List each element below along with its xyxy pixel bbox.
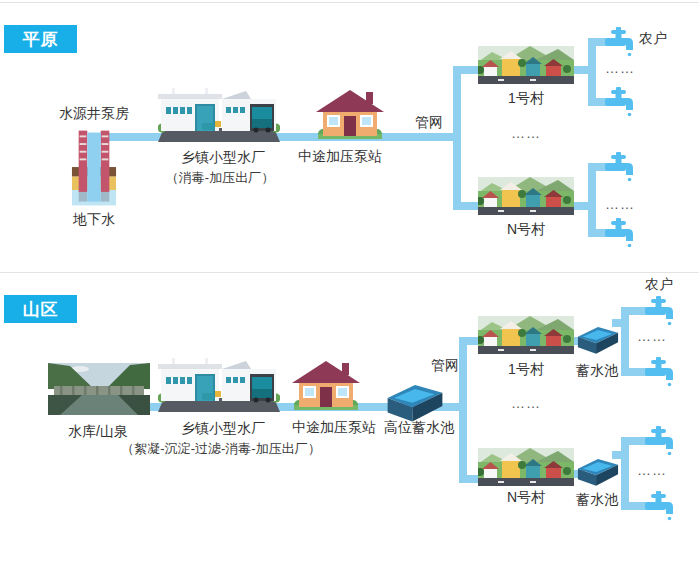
mountain-tank1-label: 蓄水池	[569, 362, 625, 379]
plain-village1-label: 1号村	[478, 90, 574, 107]
plain-groundwater-label: 地下水	[46, 211, 142, 228]
mountain-household-label: 农户	[645, 276, 677, 293]
plain-village1-faucet-riser	[588, 38, 596, 106]
mountain-tankN-label: 蓄水池	[569, 491, 625, 508]
village-icon	[478, 177, 574, 215]
plain-villageN-label: N号村	[478, 221, 574, 238]
pump-house-icon	[316, 88, 384, 142]
plain-plant-label: 乡镇小型水厂	[168, 149, 278, 166]
mountain-village1-label: 1号村	[478, 361, 574, 378]
plain-household-label: 农户	[639, 30, 671, 47]
plain-villageN-faucet-riser	[588, 163, 596, 237]
faucet-icon	[604, 218, 634, 252]
reservoir-photo-icon	[48, 363, 150, 415]
mountain-plant-label: 乡镇小型水厂	[168, 420, 278, 437]
village-icon	[478, 46, 574, 84]
mountain-villages-ellipsis: ……	[490, 396, 562, 410]
faucet-icon	[604, 87, 634, 121]
plain-villages-ellipsis: ……	[490, 126, 562, 140]
mountain-village1-faucets-ellipsis: ……	[630, 329, 674, 343]
mountain-network-label: 管网	[427, 357, 463, 374]
storage-pool-icon	[576, 456, 620, 487]
high-storage-pool-icon	[385, 381, 445, 423]
faucet-icon	[644, 426, 674, 460]
village-icon	[478, 448, 574, 486]
plain-branch-village1-pipe	[453, 66, 481, 74]
plain-plant-process-label: （消毒-加压出厂）	[147, 170, 293, 186]
well-pump-icon	[71, 129, 117, 207]
faucet-icon	[644, 491, 674, 525]
plain-well-label: 水源井泵房	[46, 105, 142, 122]
water-supply-diagram: 平原 水源井泵房 地下水 乡镇小型水厂 （消毒-加压出厂） 中途加压泵站 管网 …	[0, 0, 699, 572]
plain-network-label: 管网	[411, 114, 447, 131]
top-border-line	[0, 2, 699, 3]
village-icon	[478, 316, 574, 354]
mountain-pump-label: 中途加压泵站	[291, 419, 377, 436]
plain-villageN-faucets-ellipsis: ……	[600, 197, 640, 211]
mountain-high-tank-label: 高位蓄水池	[377, 419, 461, 436]
water-plant-icon	[158, 356, 280, 414]
mountain-villageN-faucets-ellipsis: ……	[630, 463, 674, 477]
water-plant-icon	[158, 86, 280, 144]
faucet-icon	[604, 27, 634, 61]
plain-junction-pipe	[453, 66, 461, 210]
plain-village1-faucets-ellipsis: ……	[600, 61, 640, 75]
mountain-plant-process-label: （絮凝-沉淀-过滤-消毒-加压出厂）	[121, 441, 321, 457]
storage-pool-icon	[576, 324, 620, 355]
mountain-villageN-label: N号村	[478, 489, 574, 506]
faucet-icon	[644, 357, 674, 391]
pump-house-icon	[292, 359, 360, 413]
plain-pump-label: 中途加压泵站	[297, 148, 383, 165]
mountain-source-label: 水库/山泉	[40, 423, 156, 440]
section-divider-line	[0, 272, 699, 273]
mountain-section-badge: 山区	[4, 295, 77, 323]
plain-section-badge: 平原	[4, 25, 77, 53]
faucet-icon	[604, 152, 634, 186]
plain-branch-villageN-pipe	[453, 202, 481, 210]
faucet-icon	[644, 296, 674, 330]
